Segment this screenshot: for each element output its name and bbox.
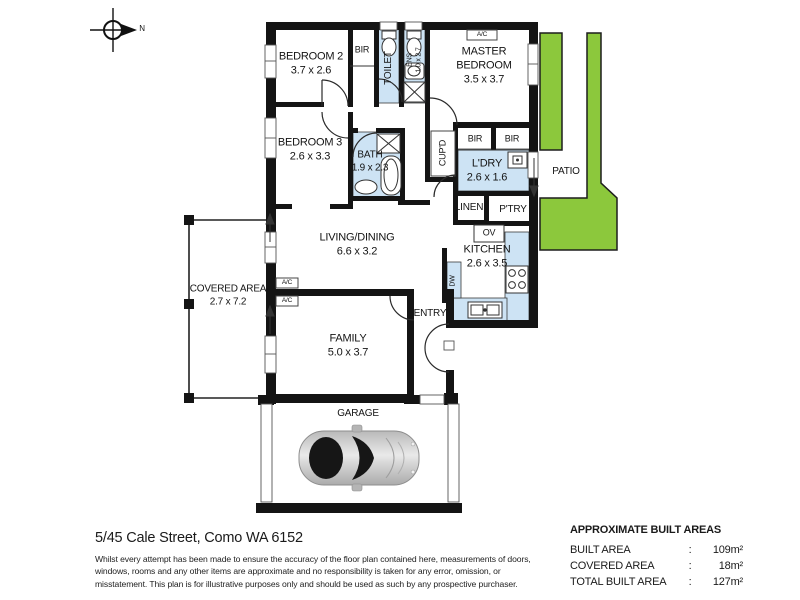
area-row-separator: : bbox=[682, 544, 698, 556]
room-label-bir1: BIR bbox=[355, 44, 369, 55]
room-label-garage: GARAGE bbox=[337, 408, 379, 421]
room-label-master: MASTER BEDROOM 3.5 x 3.7 bbox=[441, 45, 527, 86]
area-row-value: 109m² bbox=[698, 544, 743, 556]
room-label-bedroom2: BEDROOM 2 3.7 x 2.6 bbox=[279, 50, 343, 78]
built-areas-panel: APPROXIMATE BUILT AREAS BUILT AREA : 109… bbox=[570, 524, 755, 592]
compass-icon bbox=[90, 8, 137, 52]
room-label-ov: OV bbox=[483, 227, 496, 238]
room-label-ldry: L'DRY 2.6 x 1.6 bbox=[467, 157, 507, 185]
covered-area-outline bbox=[184, 215, 268, 403]
property-address: 5/45 Cale Street, Como WA 6152 bbox=[95, 530, 303, 546]
floor-plan-drawing bbox=[0, 0, 800, 600]
room-label-dw: DW bbox=[450, 275, 459, 286]
area-row-label: BUILT AREA bbox=[570, 544, 682, 556]
room-label-linen: LINEN bbox=[455, 202, 483, 215]
area-row-value: 127m² bbox=[698, 576, 743, 588]
room-label-kitchen: KITCHEN 2.6 x 3.5 bbox=[464, 243, 511, 271]
room-label-living: LIVING/DINING 6.6 x 3.2 bbox=[319, 231, 394, 259]
area-row-label: TOTAL BUILT AREA bbox=[570, 576, 682, 588]
room-label-bir2: BIR bbox=[468, 133, 482, 144]
car-icon bbox=[299, 425, 419, 491]
disclaimer-text: Whilst every attempt has been made to en… bbox=[95, 553, 533, 590]
area-row-label: COVERED AREA bbox=[570, 560, 682, 572]
room-label-family: FAMILY 5.0 x 3.7 bbox=[328, 332, 368, 360]
room-label-ptry: P'TRY bbox=[499, 204, 526, 217]
built-area-row: BUILT AREA : 109m² bbox=[570, 544, 755, 556]
room-label-patio: PATIO bbox=[552, 166, 580, 179]
ac-label-living-top: A/C bbox=[282, 279, 292, 287]
room-label-ens: ENS 1.0 x 2.7 bbox=[406, 47, 424, 72]
built-areas-title: APPROXIMATE BUILT AREAS bbox=[570, 524, 755, 536]
room-label-bath: BATH 1.9 x 2.3 bbox=[352, 150, 389, 175]
room-label-bir3: BIR bbox=[505, 133, 519, 144]
total-built-area-row: TOTAL BUILT AREA : 127m² bbox=[570, 576, 755, 588]
room-label-cupd: CUP'D bbox=[437, 140, 448, 166]
room-label-bedroom3: BEDROOM 3 2.6 x 3.3 bbox=[278, 136, 342, 164]
covered-area-row: COVERED AREA : 18m² bbox=[570, 560, 755, 572]
room-label-toilet: TOILET bbox=[383, 51, 396, 85]
door-swings bbox=[322, 79, 457, 372]
ac-label-living-bottom: A/C bbox=[282, 297, 292, 305]
ac-label-master: A/C bbox=[477, 31, 487, 39]
room-label-covered-area: COVERED AREA 2.7 x 7.2 bbox=[190, 284, 267, 309]
area-row-separator: : bbox=[682, 560, 698, 572]
area-row-value: 18m² bbox=[698, 560, 743, 572]
floor-plan-page: N BEDROOM 2 3.7 x 2.6 BIR TOILET ENS 1.0… bbox=[0, 0, 800, 600]
compass-north-label: N bbox=[139, 24, 145, 34]
area-row-separator: : bbox=[682, 576, 698, 588]
garden-area bbox=[540, 33, 617, 250]
room-label-entry: ENTRY bbox=[414, 308, 447, 321]
